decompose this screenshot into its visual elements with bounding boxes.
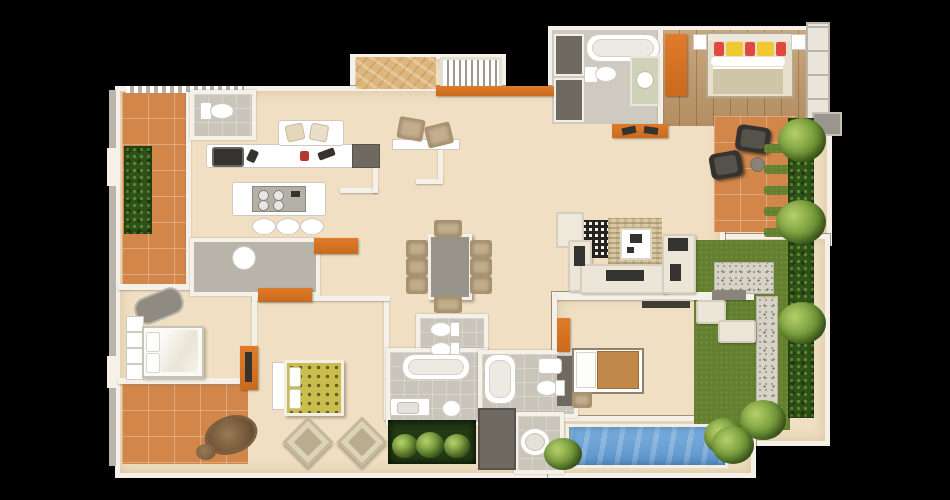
dining-chair-icon	[434, 296, 462, 313]
toilet-icon	[450, 322, 460, 337]
counter-end-cabinet	[352, 144, 380, 168]
bar-stool-icon	[300, 218, 324, 235]
wall-balcony-bottom	[118, 284, 192, 290]
dining-chair-icon	[470, 240, 492, 258]
vanity-basin-icon	[636, 71, 654, 89]
kitchen-sink-icon	[212, 147, 244, 167]
bench-cushion-2	[309, 123, 330, 143]
wall-nook-h	[416, 179, 443, 184]
stove-icon	[252, 186, 306, 212]
nightstand	[791, 34, 806, 50]
guest-pillow	[576, 352, 596, 388]
pillow	[289, 389, 301, 409]
pillow-yellow-icon	[726, 42, 743, 56]
bath-cabinet-dark	[554, 78, 584, 122]
toilet-bowl-icon	[595, 66, 617, 82]
pillow-yellow-icon	[757, 42, 774, 56]
shrub-icon	[416, 432, 444, 458]
pouf-icon	[196, 444, 216, 460]
wall-nook-v	[438, 148, 443, 182]
bathtub-icon	[402, 354, 470, 380]
tree-icon	[778, 118, 826, 162]
mattress	[713, 67, 783, 94]
coffee-table	[620, 228, 652, 260]
pillow	[289, 367, 301, 387]
nightstand	[693, 34, 707, 50]
left-window	[107, 148, 116, 186]
tub-basin	[592, 39, 654, 57]
coffee-table-tray	[630, 234, 642, 243]
guest-blanket	[597, 351, 639, 389]
tree-icon	[776, 200, 826, 244]
shrub-icon	[444, 434, 470, 458]
office-chair-icon	[708, 149, 744, 180]
jacuzzi-inner	[525, 433, 545, 451]
guest-door-leaf	[557, 318, 570, 352]
washbasin-icon	[538, 358, 562, 374]
burner-icon	[273, 200, 284, 211]
shrub-icon	[392, 434, 418, 458]
garden-hedge	[788, 118, 814, 418]
tub-basin	[408, 359, 464, 375]
duct-column	[806, 22, 830, 124]
entry-orange-wall	[436, 86, 556, 96]
pillow	[146, 332, 160, 352]
dining-table	[428, 234, 472, 300]
wardrobe	[258, 288, 312, 302]
bar-stool-icon	[276, 218, 300, 235]
utility-cabinet	[314, 238, 358, 254]
foyer-wood-panel	[356, 57, 436, 89]
guest-bed	[572, 348, 644, 394]
balcony-left-hedge	[124, 146, 152, 234]
doormat	[712, 290, 746, 300]
bar-stool-icon	[252, 218, 276, 235]
toilet-bowl-icon	[430, 322, 452, 337]
pool-bush-icon	[544, 438, 582, 470]
guest-nightstand	[572, 392, 592, 408]
coffee-table-item	[627, 247, 634, 253]
tv-icon	[245, 352, 252, 382]
dining-chair-icon	[470, 276, 492, 294]
vanity-basin-icon	[390, 398, 430, 416]
bath-cabinet-dark	[554, 34, 584, 76]
pillow-red-icon	[714, 42, 724, 56]
pool-bush-icon	[712, 426, 754, 464]
toilet-bowl-icon	[442, 400, 461, 417]
tree-icon	[778, 302, 826, 344]
duvet-fold	[160, 330, 198, 372]
tub-basin	[489, 360, 511, 398]
bathtub-icon	[484, 354, 516, 404]
counter-item-red	[300, 151, 309, 161]
terrace-side-table	[750, 157, 765, 172]
dining-chair-icon	[406, 240, 428, 258]
bed-white	[142, 326, 204, 378]
dining-chair-icon	[470, 258, 492, 276]
bed-yellow	[284, 360, 344, 416]
utility-basin-icon	[232, 246, 256, 270]
basin-inner	[397, 402, 419, 414]
dining-chair-icon	[406, 258, 428, 276]
vanity-counter	[630, 56, 660, 106]
nook-chair-icon	[396, 116, 425, 142]
tv-icon	[668, 238, 688, 251]
hall-console	[612, 124, 668, 138]
pillow	[146, 353, 160, 373]
toilet-bowl-icon	[210, 103, 234, 119]
bolster	[711, 57, 785, 66]
left-edge-wall	[109, 90, 116, 466]
pillow-red-icon	[776, 42, 786, 56]
toilet-icon	[555, 380, 565, 396]
wardrobe	[665, 34, 687, 96]
master-bed	[706, 32, 794, 98]
chaise-icon	[718, 320, 756, 343]
sofa-cushion-dark	[606, 270, 644, 281]
stove-knob	[291, 191, 300, 197]
floor-plan	[0, 0, 950, 500]
sofa-cushion-dark	[574, 246, 585, 266]
sofa-cushion-dark	[670, 264, 681, 281]
pillow-red-icon	[745, 42, 755, 56]
burner-icon	[258, 200, 269, 211]
dining-chair-icon	[406, 276, 428, 294]
left-window-2	[107, 356, 116, 388]
media-console	[642, 299, 690, 308]
service-shaft	[478, 408, 516, 470]
dining-chair-icon	[434, 220, 462, 237]
headboard	[708, 34, 792, 41]
